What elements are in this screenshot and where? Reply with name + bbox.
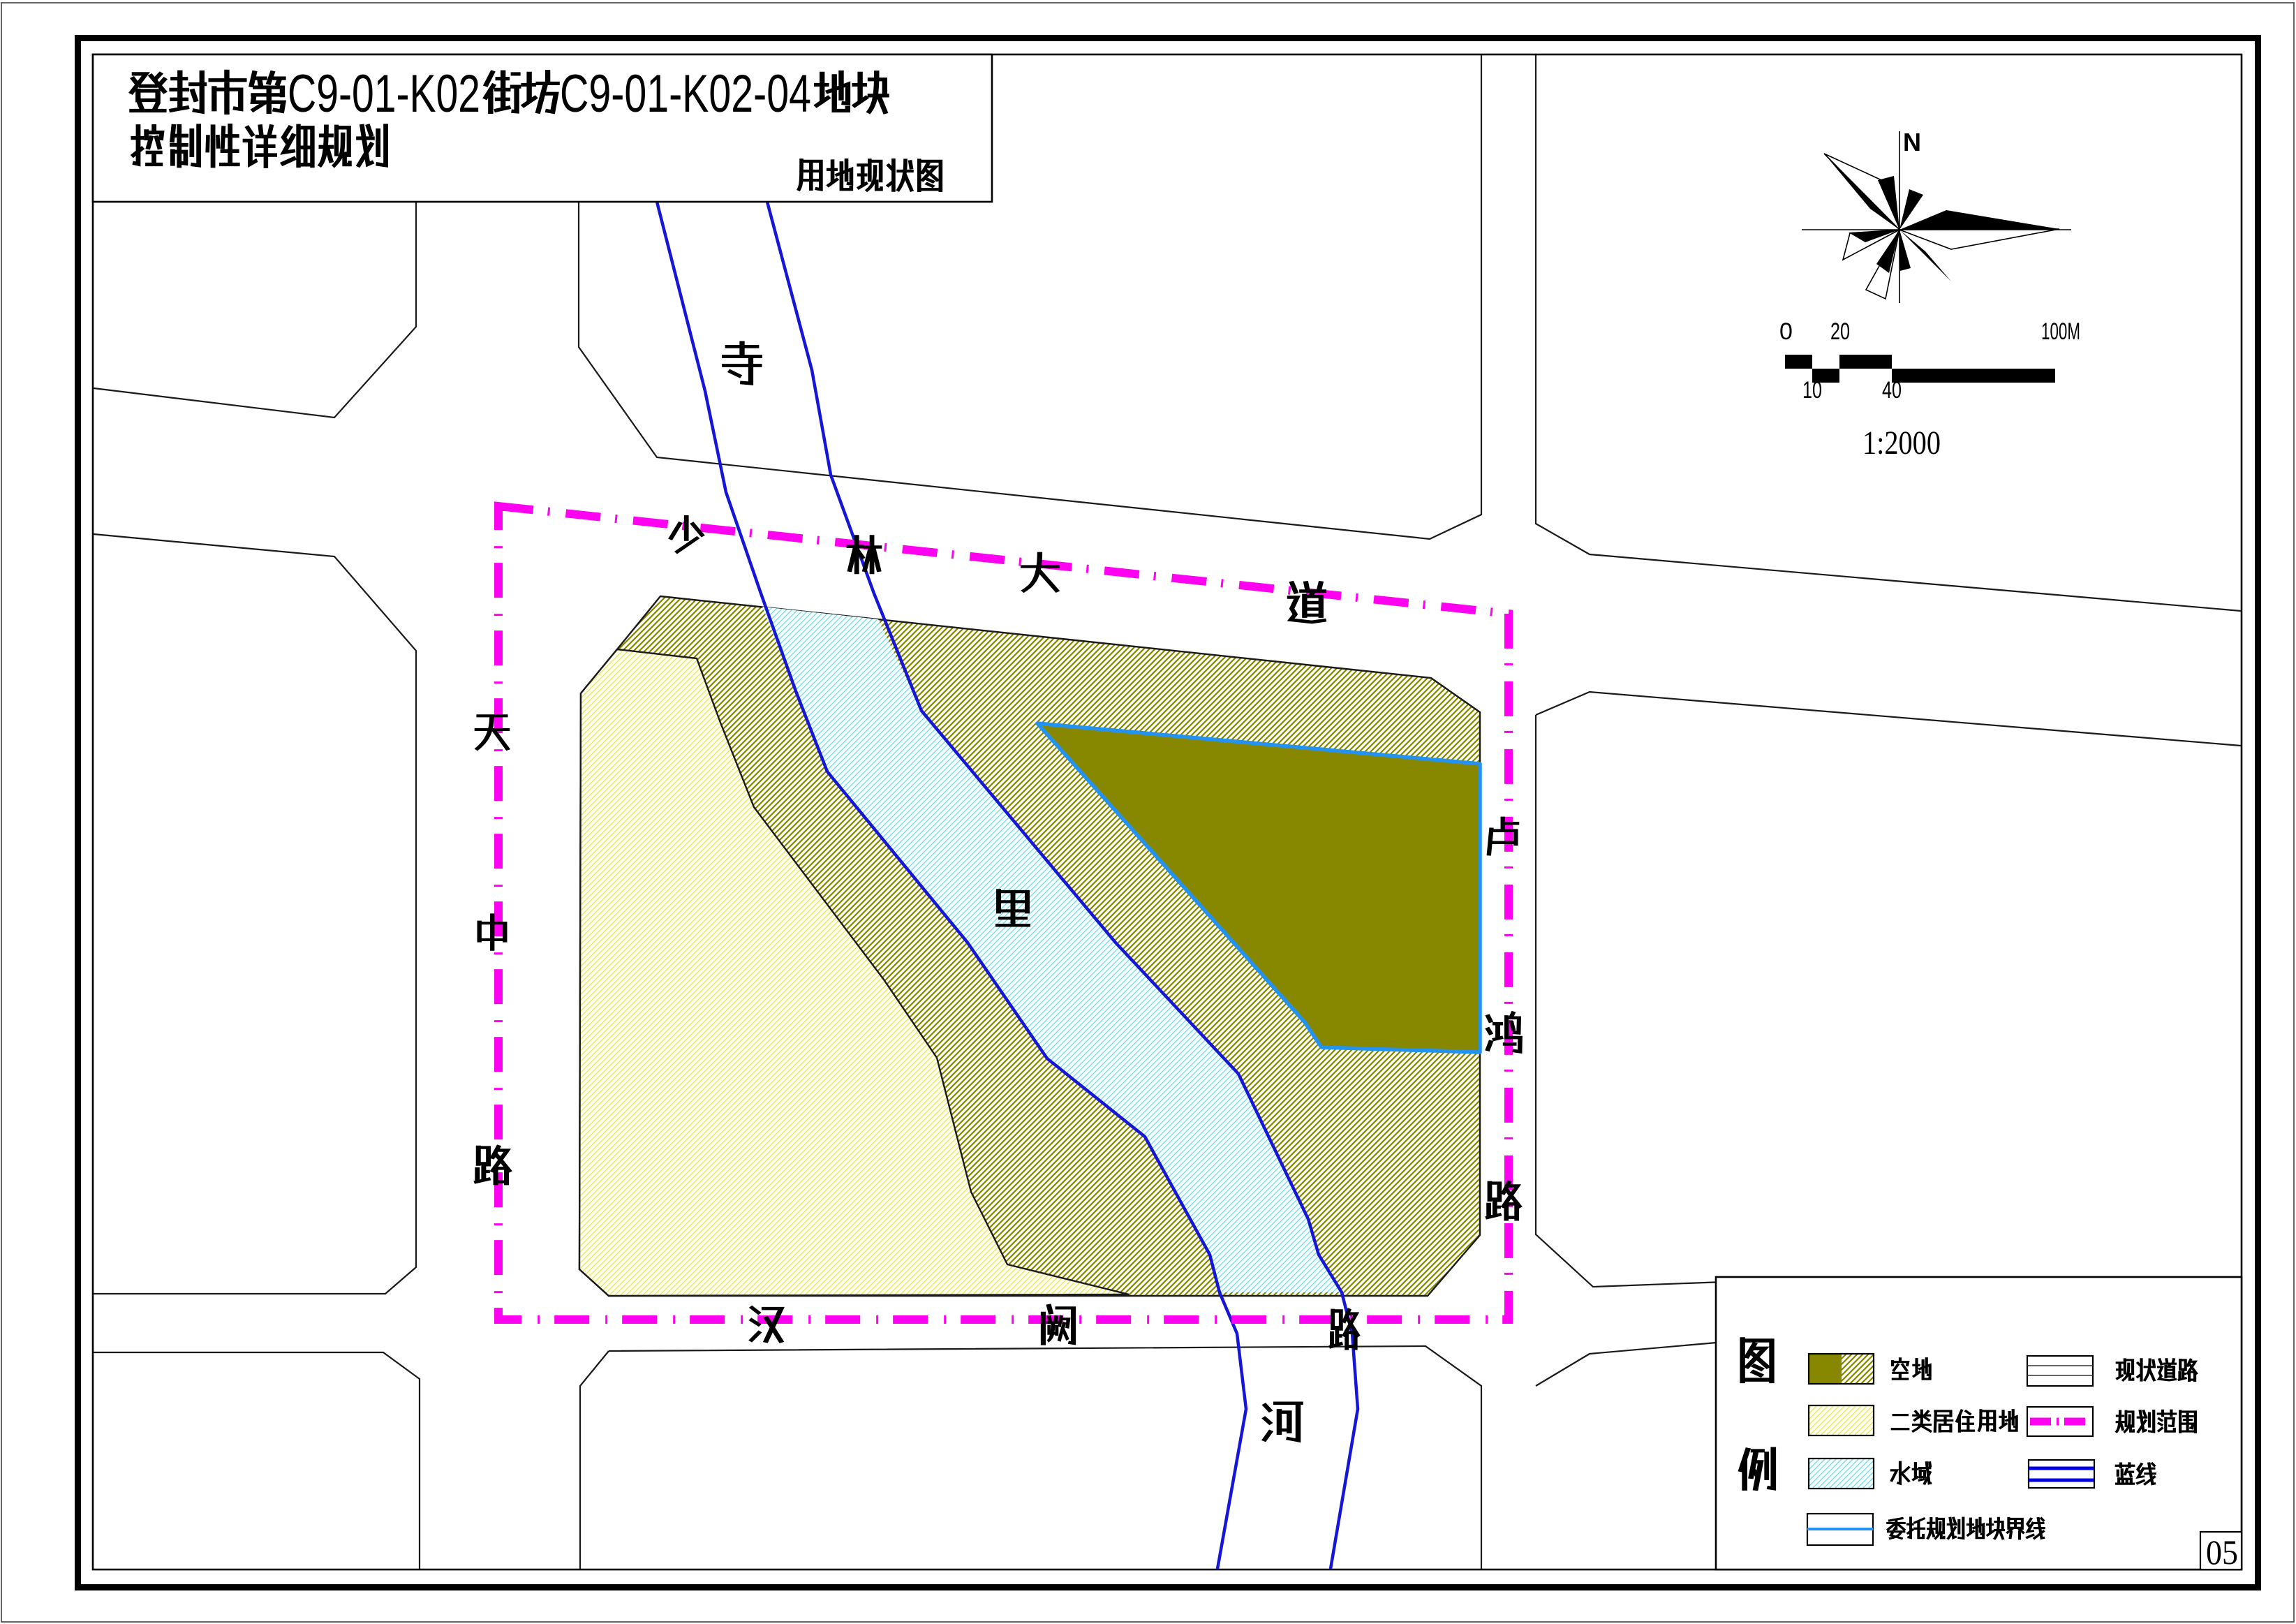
svg-text:N: N	[1903, 128, 1921, 156]
svg-text:C9-01-K02: C9-01-K02	[288, 64, 480, 124]
svg-text:10: 10	[1802, 377, 1822, 404]
svg-text:40: 40	[1882, 377, 1902, 404]
svg-text:C9-01-K02-04: C9-01-K02-04	[560, 64, 811, 124]
svg-text:20: 20	[1830, 318, 1850, 345]
svg-text:100M: 100M	[2041, 318, 2080, 345]
svg-text:0: 0	[1779, 318, 1793, 345]
svg-text:1:2000: 1:2000	[1862, 425, 1941, 462]
svg-text:05: 05	[2206, 1533, 2238, 1572]
